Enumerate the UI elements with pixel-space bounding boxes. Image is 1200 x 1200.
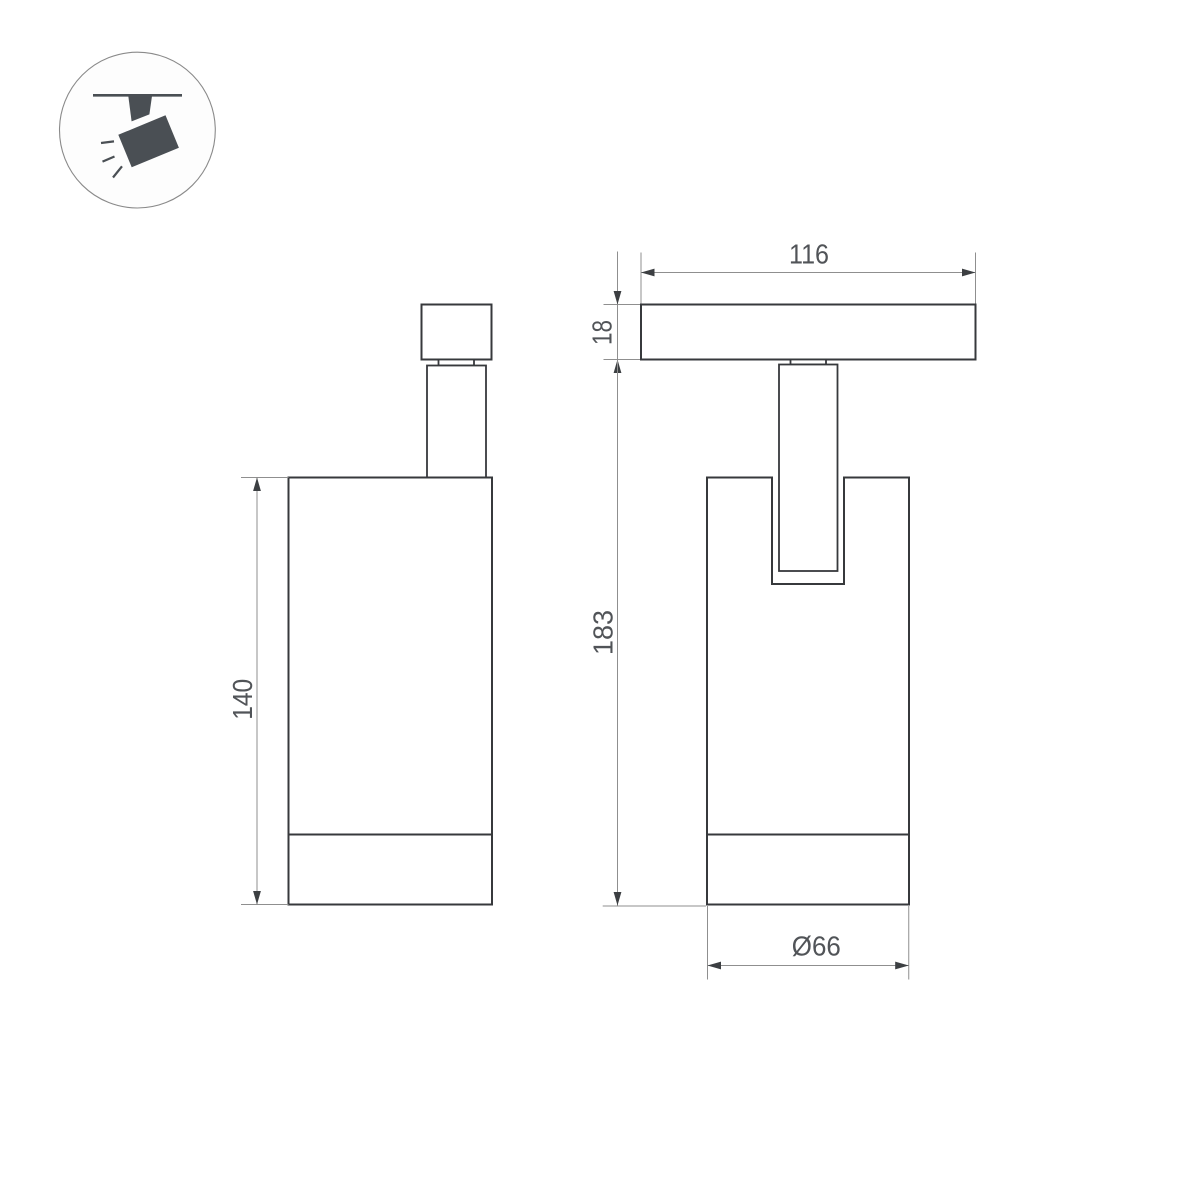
svg-text:116: 116 <box>789 239 829 270</box>
svg-text:Ø66: Ø66 <box>792 931 841 962</box>
svg-text:183: 183 <box>588 610 619 655</box>
svg-text:140: 140 <box>227 679 258 720</box>
svg-text:18: 18 <box>587 320 618 345</box>
